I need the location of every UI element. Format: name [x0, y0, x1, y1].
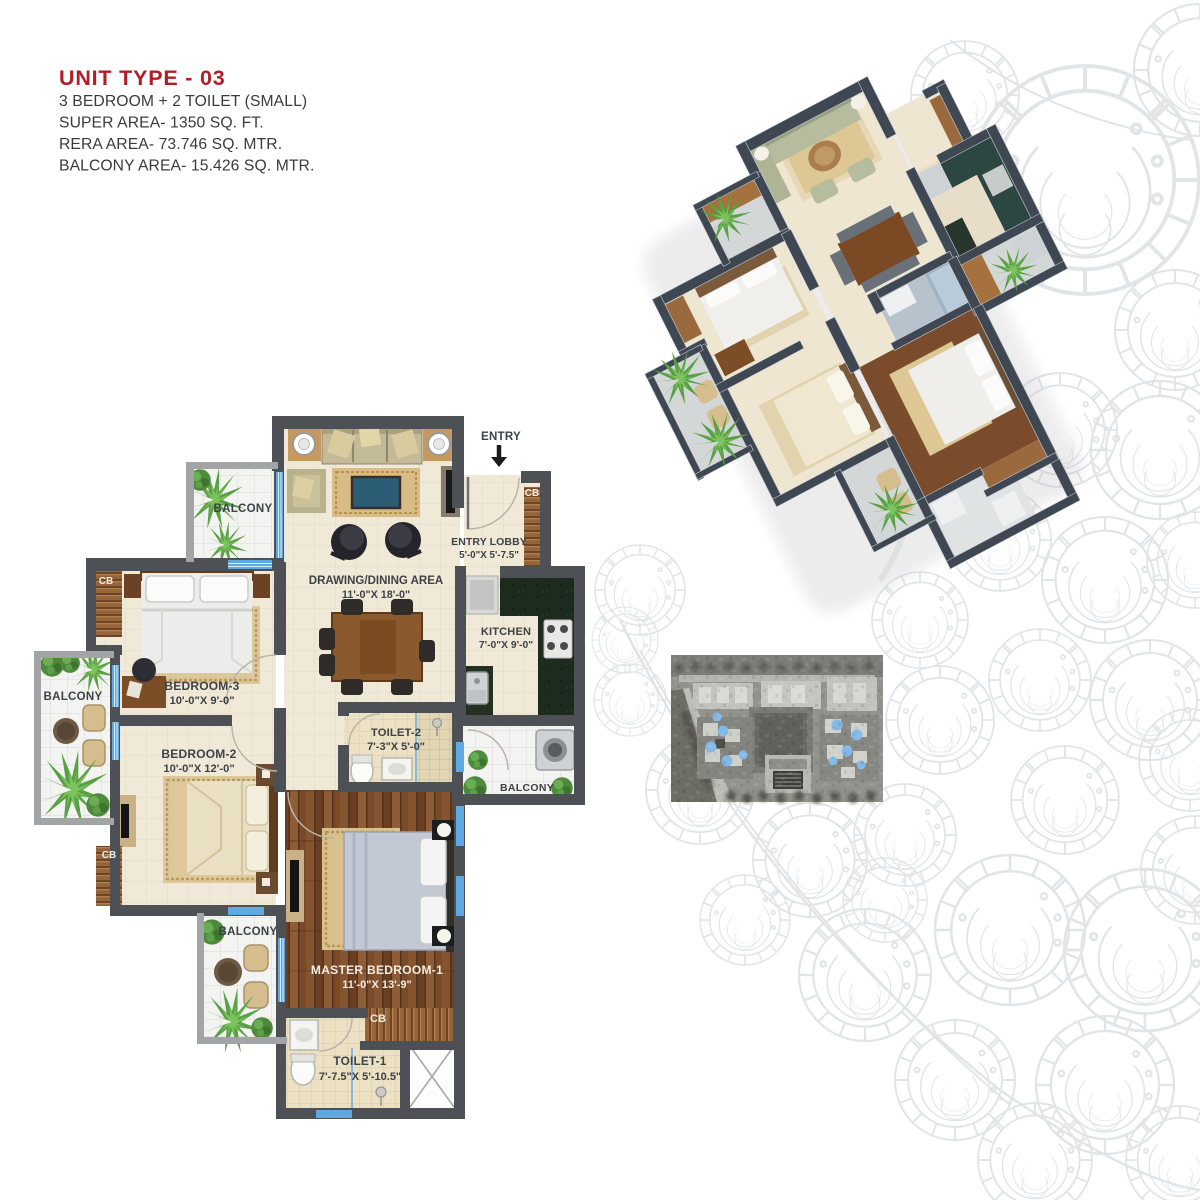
svg-text:ENTRY LOBBY: ENTRY LOBBY [451, 536, 527, 548]
svg-text:3 BEDROOM + 2 TOILET (SMALL): 3 BEDROOM + 2 TOILET (SMALL) [59, 93, 307, 110]
svg-text:5'-0"X 5'-7.5": 5'-0"X 5'-7.5" [459, 550, 519, 561]
svg-text:TOILET-1: TOILET-1 [333, 1054, 386, 1068]
svg-text:KITCHEN: KITCHEN [481, 626, 531, 638]
svg-text:BALCONY: BALCONY [219, 926, 278, 938]
svg-text:11'-0"X 13'-9": 11'-0"X 13'-9" [342, 979, 411, 991]
svg-text:CB: CB [99, 576, 113, 587]
svg-text:UNIT TYPE - 03: UNIT TYPE - 03 [59, 66, 226, 90]
svg-text:BEDROOM-2: BEDROOM-2 [161, 747, 236, 761]
svg-text:CB: CB [525, 488, 539, 499]
svg-text:MASTER BEDROOM-1: MASTER BEDROOM-1 [311, 963, 443, 977]
svg-text:BALCONY: BALCONY [44, 691, 103, 703]
svg-text:10'-0"X 9'-0": 10'-0"X 9'-0" [169, 695, 234, 707]
svg-text:CB: CB [102, 850, 116, 861]
svg-text:CB: CB [370, 1013, 386, 1025]
svg-text:11'-0"X 18'-0": 11'-0"X 18'-0" [342, 589, 410, 601]
svg-text:TOILET-2: TOILET-2 [371, 727, 421, 739]
svg-text:BEDROOM-3: BEDROOM-3 [164, 679, 239, 693]
svg-text:BALCONY AREA- 15.426 SQ. MTR.: BALCONY AREA- 15.426 SQ. MTR. [59, 158, 314, 175]
svg-text:DRAWING/DINING AREA: DRAWING/DINING AREA [309, 575, 443, 587]
svg-text:7'-7.5"X 5'-10.5": 7'-7.5"X 5'-10.5" [319, 1071, 401, 1083]
svg-text:ENTRY: ENTRY [481, 431, 521, 443]
svg-text:SUPER AREA- 1350 SQ. FT.: SUPER AREA- 1350 SQ. FT. [59, 115, 264, 132]
svg-text:10'-0"X 12'-0": 10'-0"X 12'-0" [163, 763, 234, 775]
svg-text:BALCONY: BALCONY [214, 503, 273, 515]
svg-text:BALCONY: BALCONY [500, 782, 554, 794]
svg-text:7'-3"X 5'-0": 7'-3"X 5'-0" [367, 741, 425, 753]
svg-text:7'-0"X 9'-0": 7'-0"X 9'-0" [479, 640, 533, 651]
svg-text:RERA AREA- 73.746 SQ. MTR.: RERA AREA- 73.746 SQ. MTR. [59, 136, 282, 153]
